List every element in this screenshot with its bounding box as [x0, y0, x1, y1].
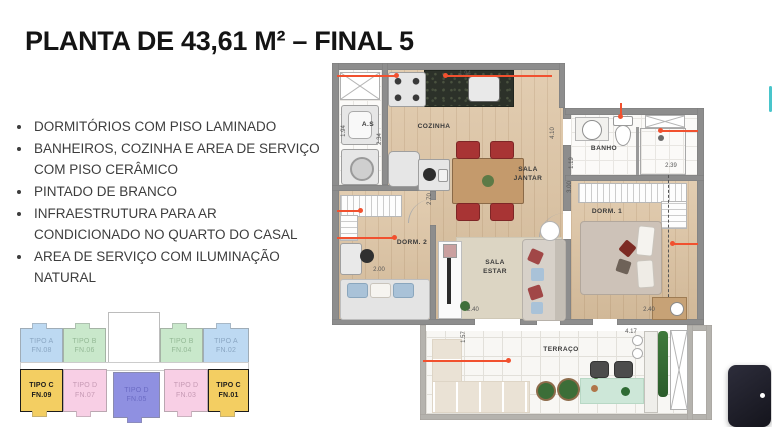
dimension-label: 2.39 — [662, 163, 680, 171]
leader-line-stove — [337, 75, 397, 77]
wall-right — [697, 108, 704, 325]
widget-indicator-dot — [760, 393, 765, 398]
bed-pillow-blue — [347, 283, 368, 298]
sofa-backrest — [555, 240, 565, 320]
terrace-cabinet — [670, 330, 688, 410]
room-label-dining: SALA JANTAR — [502, 166, 554, 183]
wall-kitchen-right — [559, 63, 565, 108]
sofa-pillow-blue — [531, 302, 543, 314]
dorm2-bed — [340, 279, 430, 320]
dorm2-closet — [340, 195, 402, 217]
dorm1-bed — [580, 221, 662, 295]
room-label-kitchen: COZINHA — [404, 123, 464, 132]
page: PLANTA DE 43,61 M² – FINAL 5 DORMITÓRIOS… — [0, 0, 772, 427]
mat-plant — [621, 387, 630, 396]
desk-chair — [360, 249, 374, 263]
building-keyplan: TIPO A FN.08 TIPO B FN.06 TIPO B FN.04 T… — [12, 308, 268, 422]
terrace-tall-plant — [658, 331, 668, 397]
dimension-label: 2.34 — [377, 130, 385, 148]
wall-shower-partition — [636, 127, 639, 175]
unit-type: TIPO D — [124, 386, 149, 395]
dimension-label: 2.00 — [370, 267, 388, 275]
room-label-bath: BANHO — [582, 145, 626, 154]
bed-pillow — [635, 225, 655, 257]
dimension-label: 1.57 — [461, 328, 469, 346]
wall-terrace-left — [420, 325, 426, 420]
terrace-counter — [644, 331, 658, 413]
keyplan-unit-fn03[interactable]: TIPO D FN.03 — [164, 369, 208, 412]
dining-chair — [456, 141, 480, 159]
dorm2-desk — [340, 243, 362, 275]
table-plant — [482, 175, 494, 187]
leader-line-terrace — [423, 360, 509, 362]
washing-machine — [341, 149, 379, 185]
stove-cooktop — [388, 72, 426, 107]
tv-screen — [447, 256, 451, 304]
feature-item: AREA DE SERVIÇO COM ILUMINAÇÃO NATURAL — [32, 246, 324, 288]
room-label-dorm2: DORM. 2 — [388, 239, 436, 248]
unit-type: TIPO B — [72, 337, 96, 346]
wall-terrace-bottom — [420, 414, 712, 420]
dimension-label: 1.19 — [569, 154, 577, 172]
dining-chair — [490, 203, 514, 221]
kitchen-sink — [468, 76, 500, 102]
sofa-pillow-red — [527, 248, 544, 265]
dorm1-closet — [578, 183, 687, 203]
keyplan-unit-fn04[interactable]: TIPO B FN.04 — [160, 328, 203, 364]
terrace-chair — [590, 361, 609, 378]
unit-final: FN.03 — [176, 391, 196, 400]
unit-final: FN.08 — [31, 346, 51, 355]
unit-final: FN.01 — [218, 391, 238, 400]
unit-type: TIPO A — [214, 337, 238, 346]
leader-line-dorm1 — [672, 243, 698, 245]
kitchen-island — [418, 159, 450, 191]
accent-pillow-red — [618, 239, 636, 257]
terrace-plant-pot — [538, 383, 554, 399]
keyplan-unit-fn09[interactable]: TIPO C FN.09 — [20, 369, 63, 412]
accent-pillow-gray — [615, 258, 631, 274]
unit-final: FN.05 — [126, 395, 146, 404]
bed-pillow-blue — [393, 283, 414, 298]
terrace-chair — [614, 361, 633, 378]
feature-list: DORMITÓRIOS COM PISO LAMINADO BANHEIROS,… — [14, 116, 324, 289]
unit-type: TIPO C — [29, 381, 54, 390]
unit-type: TIPO D — [174, 381, 199, 390]
sofa-pillow-red — [527, 284, 543, 300]
leader-line-toilet — [620, 103, 622, 117]
unit-final: FN.06 — [74, 346, 94, 355]
room-label-terrace: TERRAÇO — [530, 346, 592, 355]
dining-chair — [490, 141, 514, 159]
floor-plan: A.S COZINHA SALA JANTAR BANHO DORM. 1 DO… — [332, 63, 712, 421]
nightstand-clock — [670, 302, 684, 316]
room-label-dorm1: DORM. 1 — [582, 208, 632, 217]
bath-vanity — [575, 117, 609, 141]
bath-sink — [582, 120, 602, 140]
tv-panel — [438, 241, 462, 319]
dimension-label: 1.94 — [341, 122, 349, 140]
wall-terrace-right-outer — [706, 325, 712, 420]
unit-final: FN.04 — [171, 346, 191, 355]
unit-type: TIPO D — [73, 381, 98, 390]
terrace-planter-vertical — [432, 339, 462, 385]
washing-machine-drum — [350, 157, 374, 181]
leader-line-service — [337, 210, 361, 212]
keyplan-unit-fn08[interactable]: TIPO A FN.08 — [20, 328, 63, 364]
ac-infrastructure-line — [668, 175, 669, 317]
bed-pillow — [636, 259, 655, 288]
leader-line-shower — [660, 130, 698, 132]
dimension-label: 2.40 — [464, 307, 482, 315]
unit-final: FN.07 — [75, 391, 95, 400]
wall-banho-top — [565, 108, 704, 115]
feature-item: BANHEIROS, COZINHA E AREA DE SERVIÇO COM… — [32, 138, 324, 180]
island-cooktop — [423, 168, 436, 181]
room-label-living: SALA ESTAR — [472, 259, 518, 276]
wall-top — [332, 63, 565, 70]
side-table — [540, 221, 560, 241]
unit-final: FN.02 — [216, 346, 236, 355]
terrace-plant-pot — [559, 380, 578, 399]
room-label-service: A.S — [350, 121, 386, 130]
keyplan-unit-fn01[interactable]: TIPO C FN.01 — [208, 369, 249, 412]
keyplan-core — [108, 312, 160, 366]
unit-final: FN.09 — [31, 391, 51, 400]
wall-banho-bottom — [565, 175, 704, 181]
dimension-label: 4.10 — [550, 124, 558, 142]
shower-drain — [658, 135, 664, 141]
keyplan-unit-fn07[interactable]: TIPO D FN.07 — [63, 369, 107, 412]
terrace-planter-horizontal — [432, 381, 530, 413]
sofa — [522, 239, 566, 321]
keyplan-unit-fn06[interactable]: TIPO B FN.06 — [63, 328, 106, 364]
leader-line-dorm2 — [337, 237, 395, 239]
sofa-pillow-blue — [531, 268, 544, 281]
unit-type: TIPO B — [169, 337, 193, 346]
feature-item: DORMITÓRIOS COM PISO LAMINADO — [32, 116, 324, 137]
keyplan-unit-fn02[interactable]: TIPO A FN.02 — [203, 328, 249, 364]
wall-left — [332, 63, 339, 325]
wall-frame — [443, 244, 457, 258]
feature-item: PINTADO DE BRANCO — [32, 181, 324, 202]
bed-pillow — [370, 283, 391, 298]
dimension-label: 2.40 — [640, 307, 658, 315]
unit-type: TIPO A — [30, 337, 54, 346]
page-title: PLANTA DE 43,61 M² – FINAL 5 — [25, 26, 414, 57]
unit-type: TIPO C — [216, 381, 241, 390]
island-sink — [438, 169, 448, 182]
feature-item: INFRAESTRUTURA PARA AR CONDICIONADO NO Q… — [32, 203, 324, 245]
terrace-stool — [632, 348, 643, 359]
leader-line-kitchen-sink — [445, 75, 552, 77]
dining-chair — [456, 203, 480, 221]
bath-cabinet — [645, 115, 685, 128]
floating-widget-button[interactable] — [728, 365, 771, 427]
dimension-label: 4.17 — [622, 329, 640, 337]
dorm1-closet-side — [661, 201, 687, 229]
mat-dish — [591, 385, 598, 392]
dimension-label: 2.70 — [427, 190, 435, 208]
dimension-label: 3.00 — [567, 178, 575, 196]
wall-bottom-c — [560, 319, 593, 325]
keyplan-unit-fn05[interactable]: TIPO D FN.05 — [113, 372, 160, 418]
terrace-mat — [580, 378, 644, 404]
refrigerator — [388, 151, 420, 187]
